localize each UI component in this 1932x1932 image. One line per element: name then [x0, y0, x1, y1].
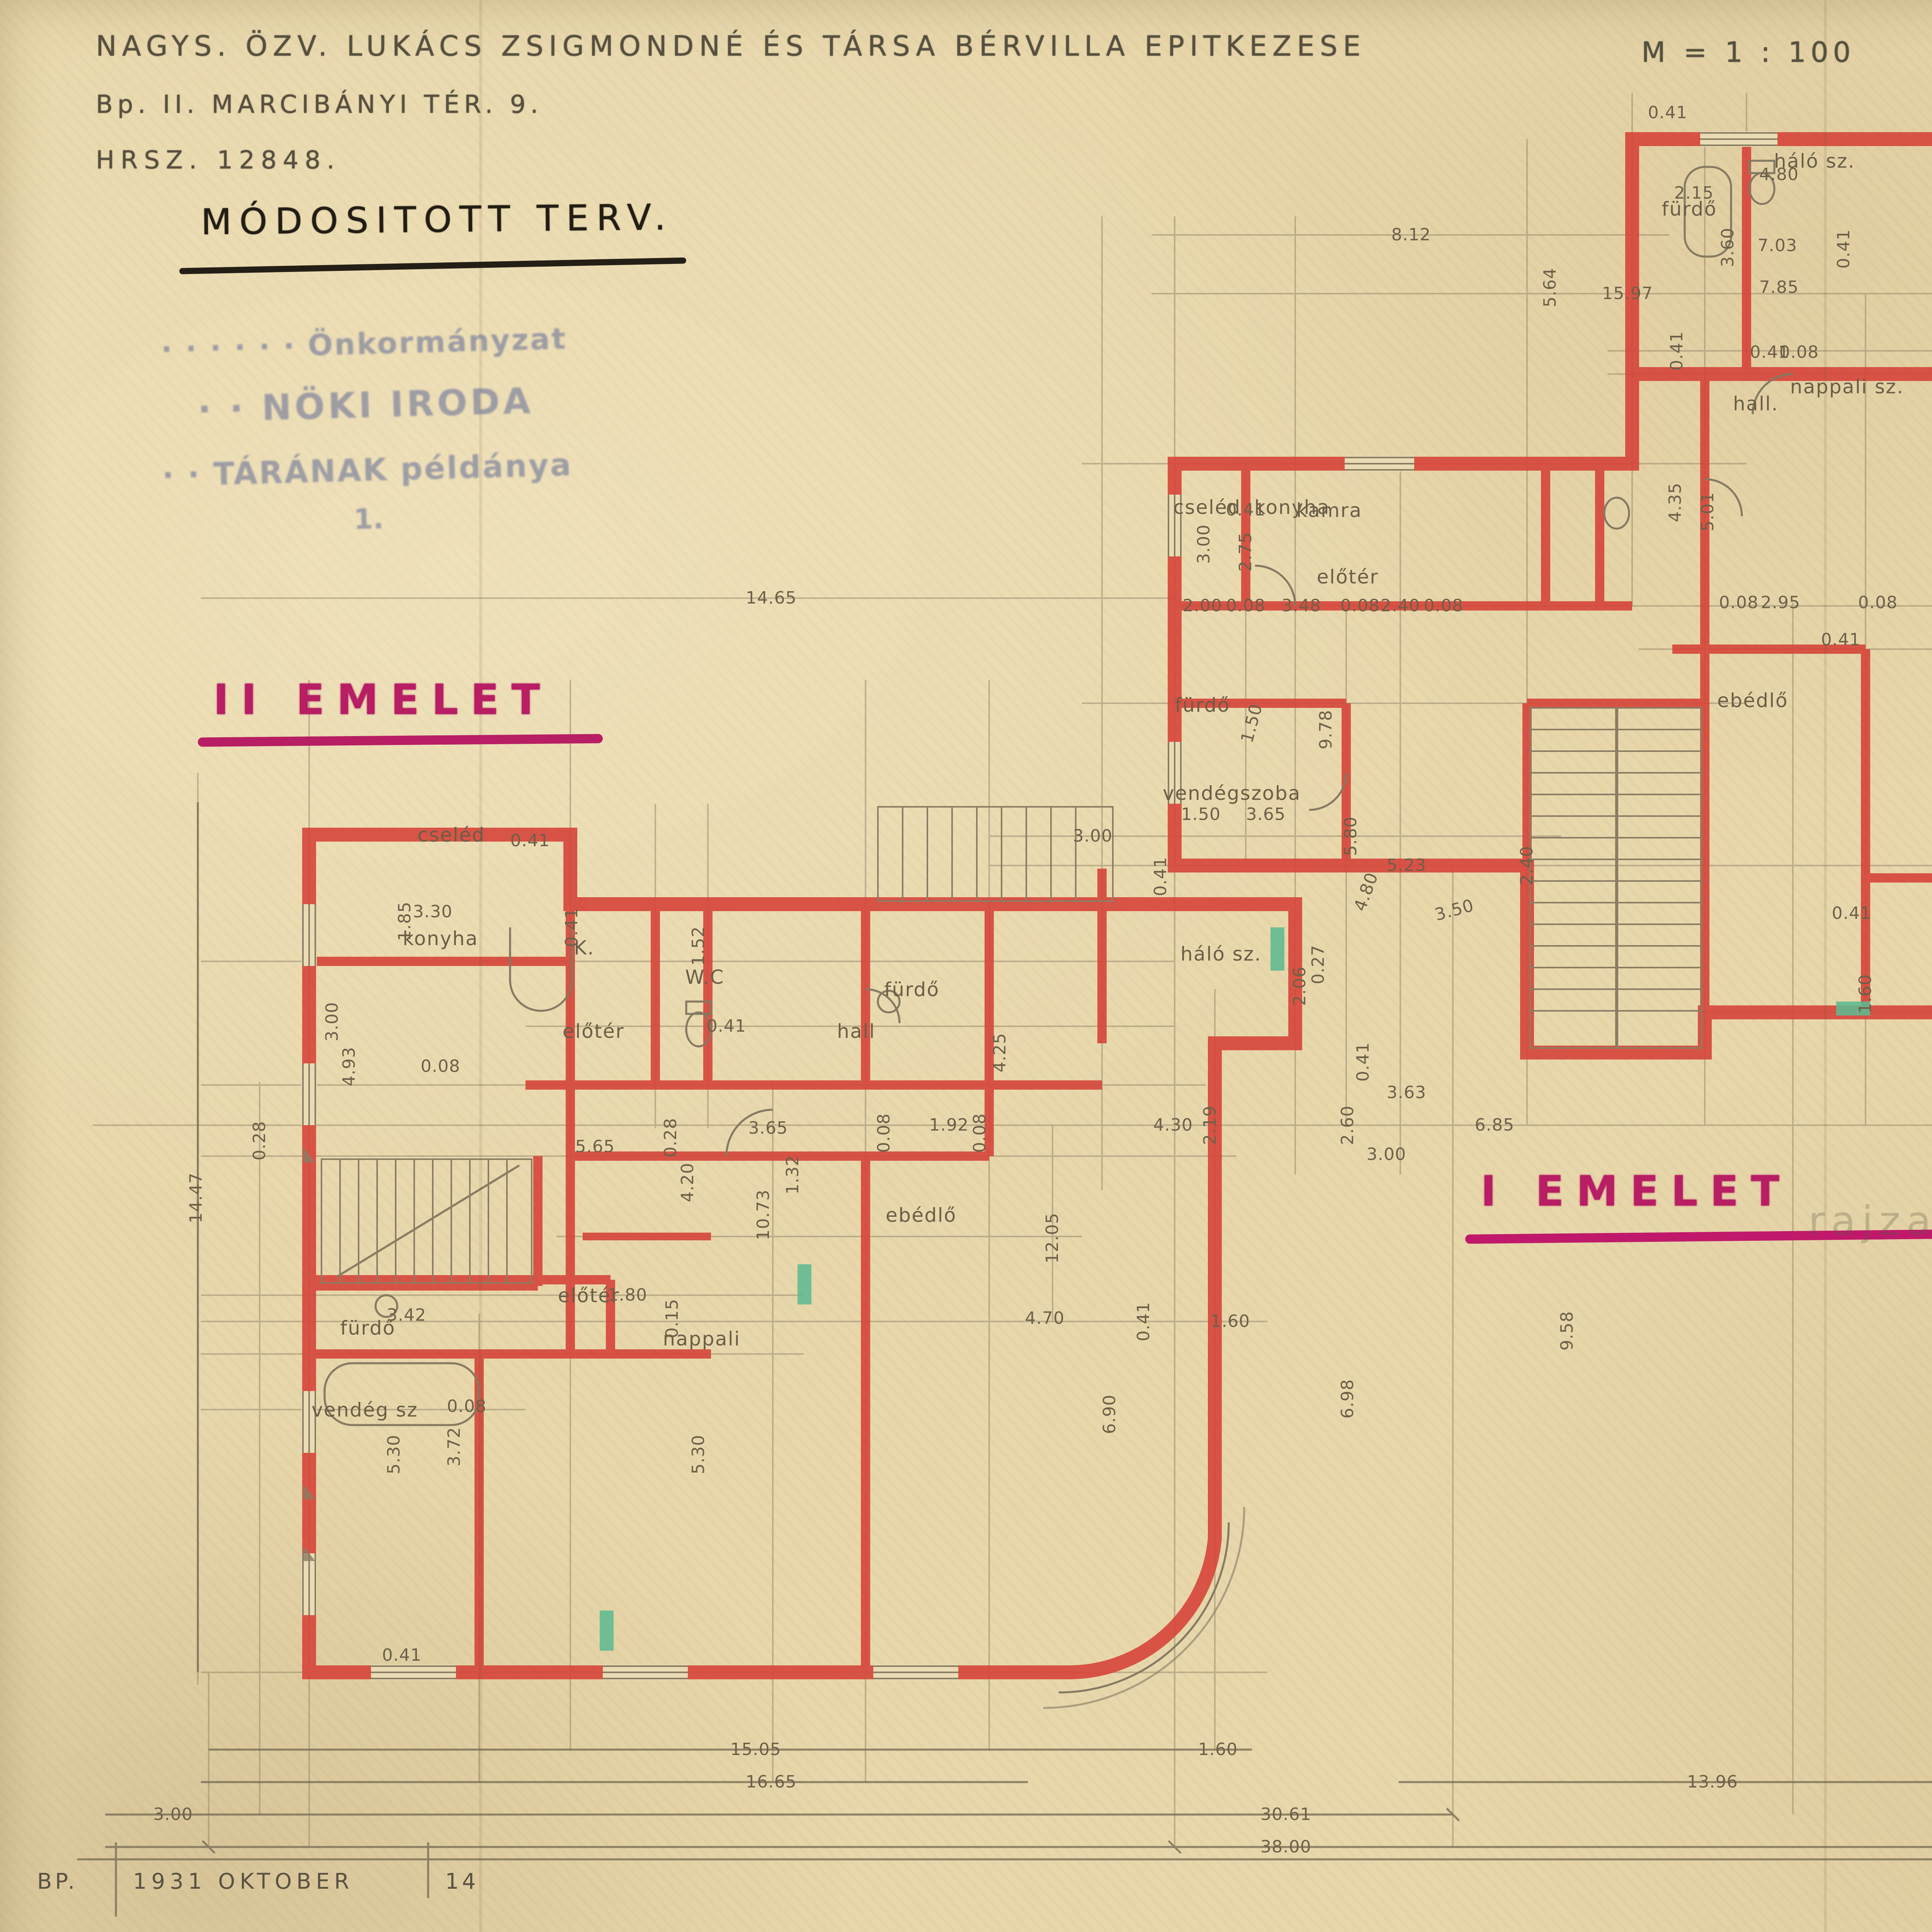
dimension-label: 0.08: [1858, 593, 1898, 613]
room-label: nappali sz.: [1790, 375, 1904, 398]
dimension-label: 8.12: [1391, 225, 1431, 245]
dimension-label: 6.85: [1475, 1115, 1515, 1135]
dimension-label: 2.19: [1200, 1105, 1220, 1145]
dimension-label: 1.52: [689, 926, 709, 966]
dimension-label: 7.03: [1758, 236, 1798, 256]
blueprint-page: NAGYS. ÖZV. LUKÁCS ZSIGMONDNÉ ÉS TÁRSA B…: [0, 0, 1932, 1932]
dimension-label: 5.65: [575, 1137, 615, 1157]
room-label: hall: [837, 1019, 876, 1043]
dimension-label: 15.05: [730, 1740, 781, 1760]
dimension-label: 0.08: [1779, 342, 1819, 362]
dimension-label: 15.97: [1602, 284, 1653, 304]
dimension-label: 0.08: [1340, 596, 1380, 616]
dimension-label: 0.27: [1308, 945, 1328, 985]
dimension-label: 1.60: [1211, 1311, 1250, 1332]
dimension-label: 2.40: [1517, 846, 1537, 886]
dimension-label: 4.30: [1153, 1115, 1193, 1135]
dimension-label: 3.72: [444, 1427, 464, 1467]
dimension-label: 0.41: [707, 1016, 747, 1036]
room-label: ebédlő: [1717, 689, 1788, 712]
dimension-label: 13.96: [1687, 1772, 1738, 1792]
dimension-label: 2.15: [1674, 183, 1714, 203]
dimension-label: 2.60: [1338, 1105, 1358, 1145]
dimension-label: 9.58: [1557, 1311, 1577, 1351]
room-label: hall.: [1733, 392, 1779, 415]
dimension-label: 0.28: [250, 1121, 270, 1161]
dimension-label: 14.65: [746, 588, 797, 608]
dimension-label: 1.85: [395, 901, 415, 941]
dimension-label: 38.00: [1260, 1837, 1311, 1857]
dimension-label: 0.41: [1834, 229, 1854, 269]
dimension-label: 30.61: [1260, 1804, 1311, 1825]
stamp-line: · · NÖKI IRODA: [110, 380, 621, 434]
office-stamp: · · · · · · Önkormányzat · · NÖKI IRODA …: [109, 321, 624, 543]
dimension-label: 0.08: [1424, 596, 1464, 616]
dimension-label: 4.80: [1759, 165, 1799, 185]
dimension-label: 2.40: [1381, 596, 1420, 616]
dimension-label: 6.90: [1100, 1395, 1120, 1434]
parcel-number: HRSZ. 12848.: [96, 145, 341, 175]
room-label: ebédlő: [886, 1203, 957, 1226]
dimension-label: 6.98: [1338, 1379, 1358, 1419]
room-label: cseléd: [417, 823, 485, 846]
footer-city: BP.: [37, 1870, 78, 1895]
dimension-label: 0.41: [1151, 857, 1171, 896]
dimension-label: 3.60: [1718, 228, 1738, 267]
footer-date: 1931 OKTOBER: [133, 1870, 354, 1895]
dimension-label: 4.35: [1665, 483, 1685, 522]
dimension-label: 3.63: [1387, 1083, 1427, 1103]
dimension-label: 0.08: [447, 1396, 487, 1417]
dimension-label: 9.78: [1316, 710, 1336, 750]
room-label: háló sz.: [1180, 942, 1262, 965]
dimension-label: 0.08: [874, 1113, 894, 1153]
stamp-line: · · TÁRÁNAK példánya: [112, 445, 623, 495]
room-label: kamra: [1296, 498, 1362, 522]
dimension-label: 3.65: [748, 1118, 788, 1138]
dimension-label: 1.92: [929, 1115, 969, 1135]
dimension-label: 5.30: [384, 1435, 404, 1475]
room-label: előtér: [1317, 565, 1379, 588]
dimension-label: 0.41: [1353, 1042, 1373, 1082]
document-address: Bp. II. MARCIBÁNYI TÉR. 9.: [96, 90, 543, 119]
dimension-label: 0.41: [1832, 903, 1872, 923]
dimension-label: 0.08: [1226, 596, 1266, 616]
plan-title: MÓDOSITOTT TERV.: [201, 199, 673, 244]
dimension-label: 1.60: [1198, 1740, 1238, 1760]
room-label: W.C: [685, 965, 724, 988]
dimension-label: 1.50: [1181, 804, 1221, 825]
dimension-label: 3.42: [387, 1305, 427, 1325]
dimension-label: 0.41: [1648, 103, 1688, 123]
dimension-label: 5.64: [1540, 268, 1560, 308]
room-label: előtér: [563, 1019, 625, 1043]
dimension-label: 0.08: [970, 1113, 990, 1153]
dimension-label: 1.32: [783, 1155, 803, 1195]
dimension-label: 5.01: [1698, 492, 1718, 532]
walls-second-floor: [309, 835, 1295, 1672]
teal-wall-patches: [600, 346, 1932, 1651]
dimension-label: 16.65: [746, 1772, 797, 1792]
dimension-label: 2.06: [1290, 966, 1310, 1006]
faded-stamp-fragment: rajza: [1808, 1199, 1932, 1246]
dimension-label: 12.05: [1043, 1213, 1063, 1264]
dimension-label: 10.73: [753, 1189, 774, 1240]
dimension-label: 3.00: [153, 1804, 193, 1825]
dimension-label: 2.95: [1761, 593, 1801, 613]
dimension-label: 3.00: [1073, 826, 1113, 846]
dimension-label: 5.23: [1387, 855, 1427, 876]
scale-label: M = 1 : 100: [1641, 37, 1855, 70]
dimension-label: 3.30: [413, 902, 453, 922]
dimension-label: 3.48: [1282, 596, 1321, 616]
dimension-label: 5.80: [1341, 816, 1361, 856]
dimension-label: 0.08: [1719, 593, 1759, 613]
dimension-label: 0.41: [1226, 500, 1266, 520]
dimension-label: 0.41: [510, 831, 550, 851]
dimension-label: 1.80: [608, 1285, 648, 1305]
room-label: vendégszoba: [1163, 781, 1301, 804]
dimension-label: 0.41: [382, 1645, 422, 1665]
document-title: NAGYS. ÖZV. LUKÁCS ZSIGMONDNÉ ÉS TÁRSA B…: [96, 31, 1366, 63]
room-label: fürdő: [1175, 693, 1230, 716]
dimension-label: 0.28: [661, 1118, 681, 1158]
dimension-label: 2.75: [1236, 532, 1256, 572]
dimension-label: 0.41: [562, 908, 582, 947]
footer-day: 14: [445, 1870, 479, 1895]
dimension-label: 2.00: [1183, 596, 1223, 616]
dimension-label: 3.00: [1367, 1145, 1406, 1165]
paper-crease: [479, 0, 482, 1932]
paper-crease: [1824, 0, 1827, 1932]
dimension-label: 0.41: [1821, 630, 1861, 650]
dimension-label: 3.00: [322, 1002, 342, 1042]
dimension-label: 3.00: [1194, 524, 1214, 564]
dimension-label: 0.41: [1667, 331, 1687, 371]
dimension-label: 0.41: [1134, 1302, 1154, 1342]
dimension-label: 4.70: [1025, 1308, 1065, 1328]
dimension-label: 7.85: [1759, 277, 1799, 298]
dimension-label: 4.93: [339, 1047, 359, 1087]
room-label: fürdő: [884, 978, 939, 1001]
floor-title-first: I EMELET: [1481, 1168, 1792, 1216]
dimension-label: 3.65: [1246, 804, 1286, 825]
floor-title-second: II EMELET: [213, 677, 552, 725]
dimension-label: 4.25: [990, 1033, 1010, 1073]
dimension-label: 0.15: [662, 1299, 682, 1338]
dimension-label: 14.47: [186, 1172, 206, 1223]
room-label: vendég sz: [311, 1398, 418, 1421]
dimension-label: 5.30: [689, 1435, 709, 1475]
dimension-label: 0.08: [421, 1056, 461, 1077]
dimension-label: 1.60: [1855, 974, 1876, 1014]
dimension-label: 4.20: [678, 1163, 698, 1202]
